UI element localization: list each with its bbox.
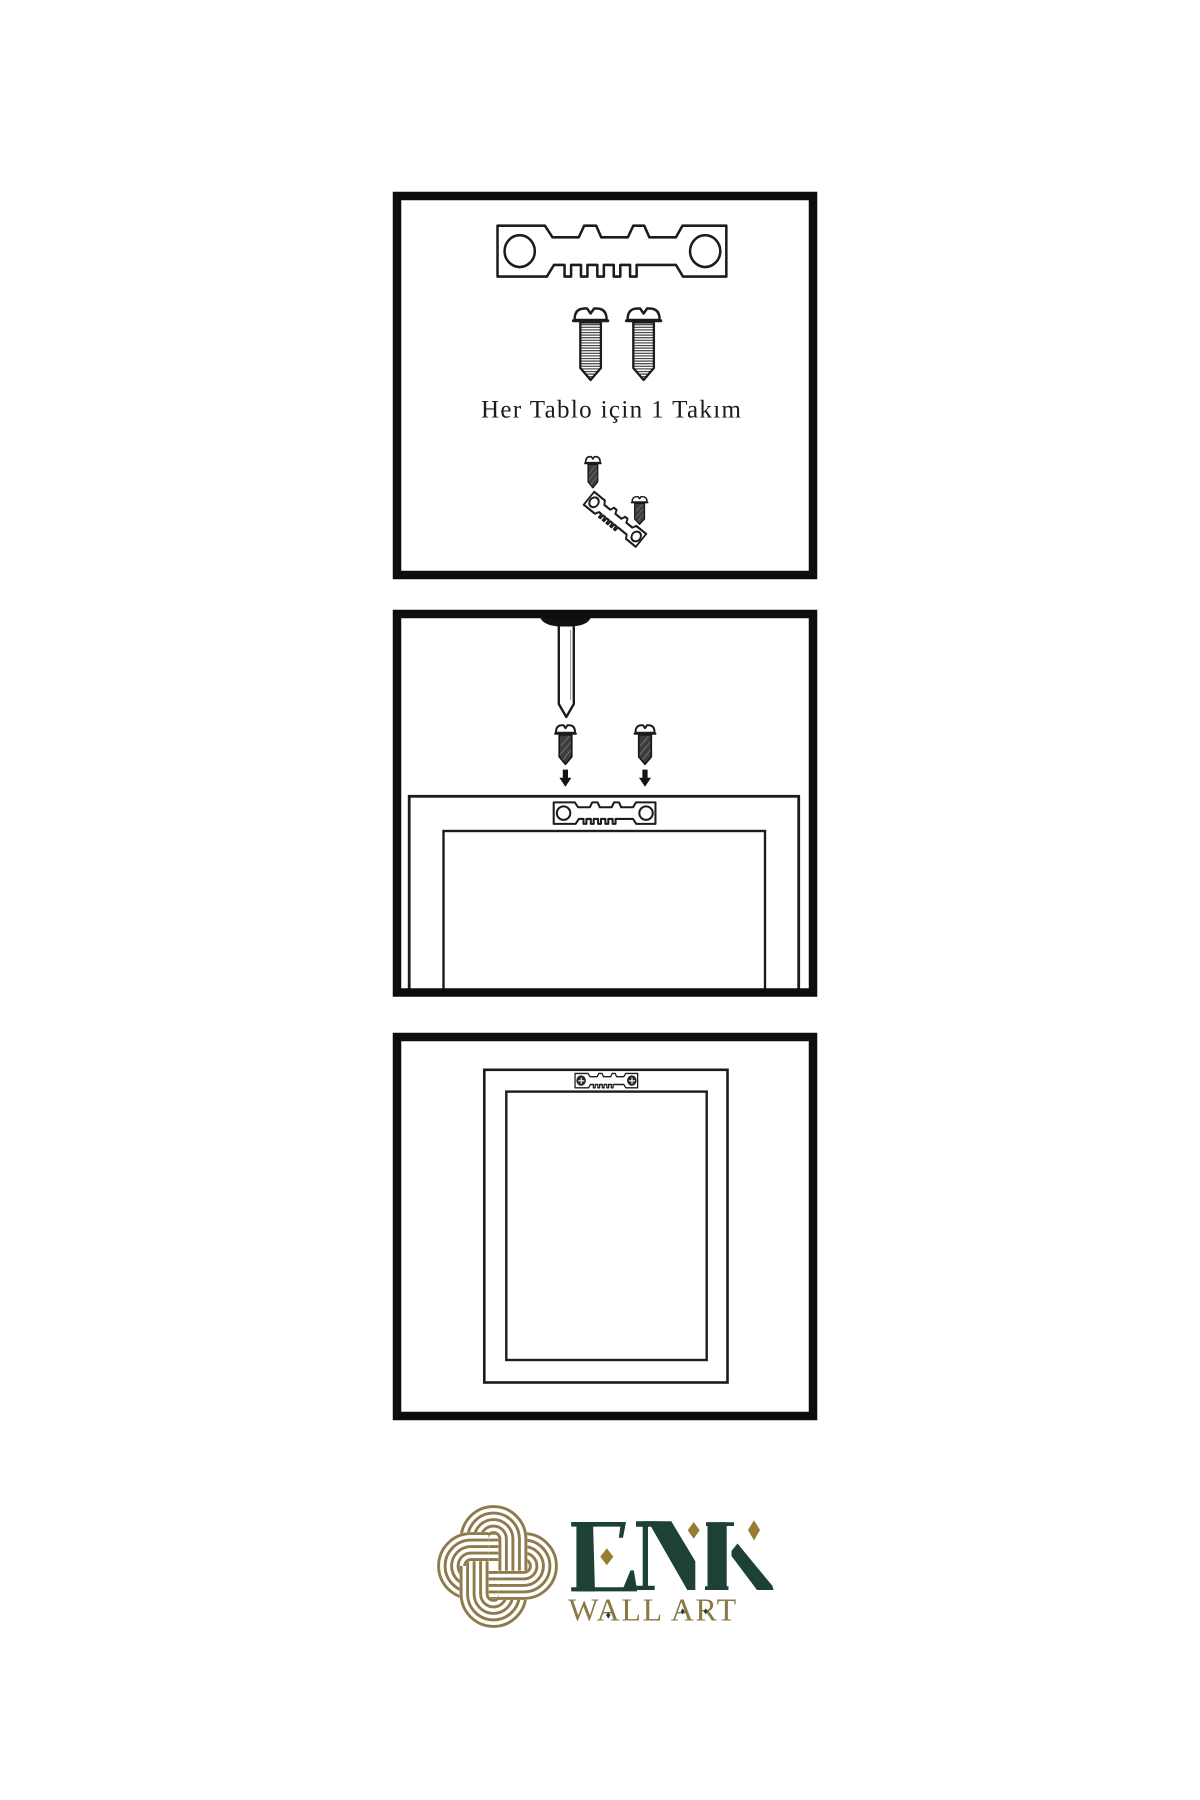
svg-text:Her Tablo için 1 Takım: Her Tablo için 1 Takım (481, 397, 742, 424)
svg-text:WALL ART: WALL ART (568, 1592, 736, 1628)
